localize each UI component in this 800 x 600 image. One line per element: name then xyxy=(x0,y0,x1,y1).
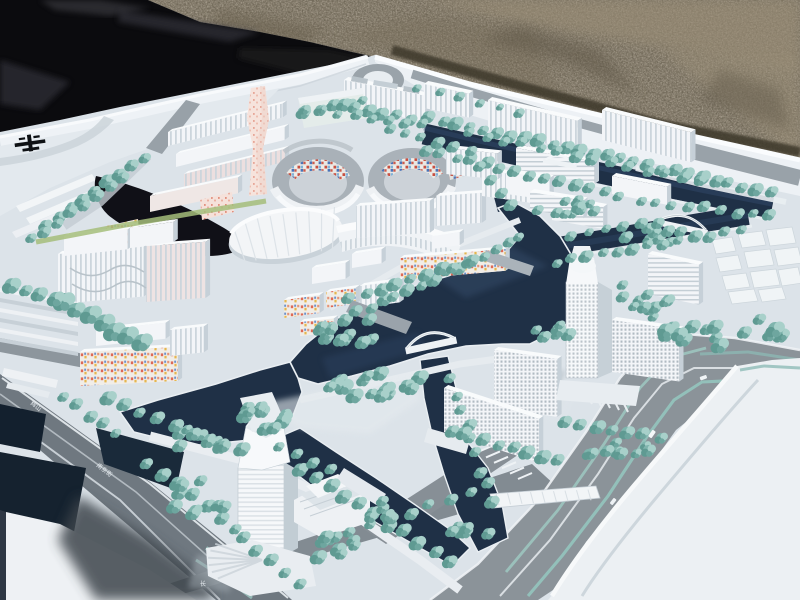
svg-text:长: 长 xyxy=(200,580,206,588)
